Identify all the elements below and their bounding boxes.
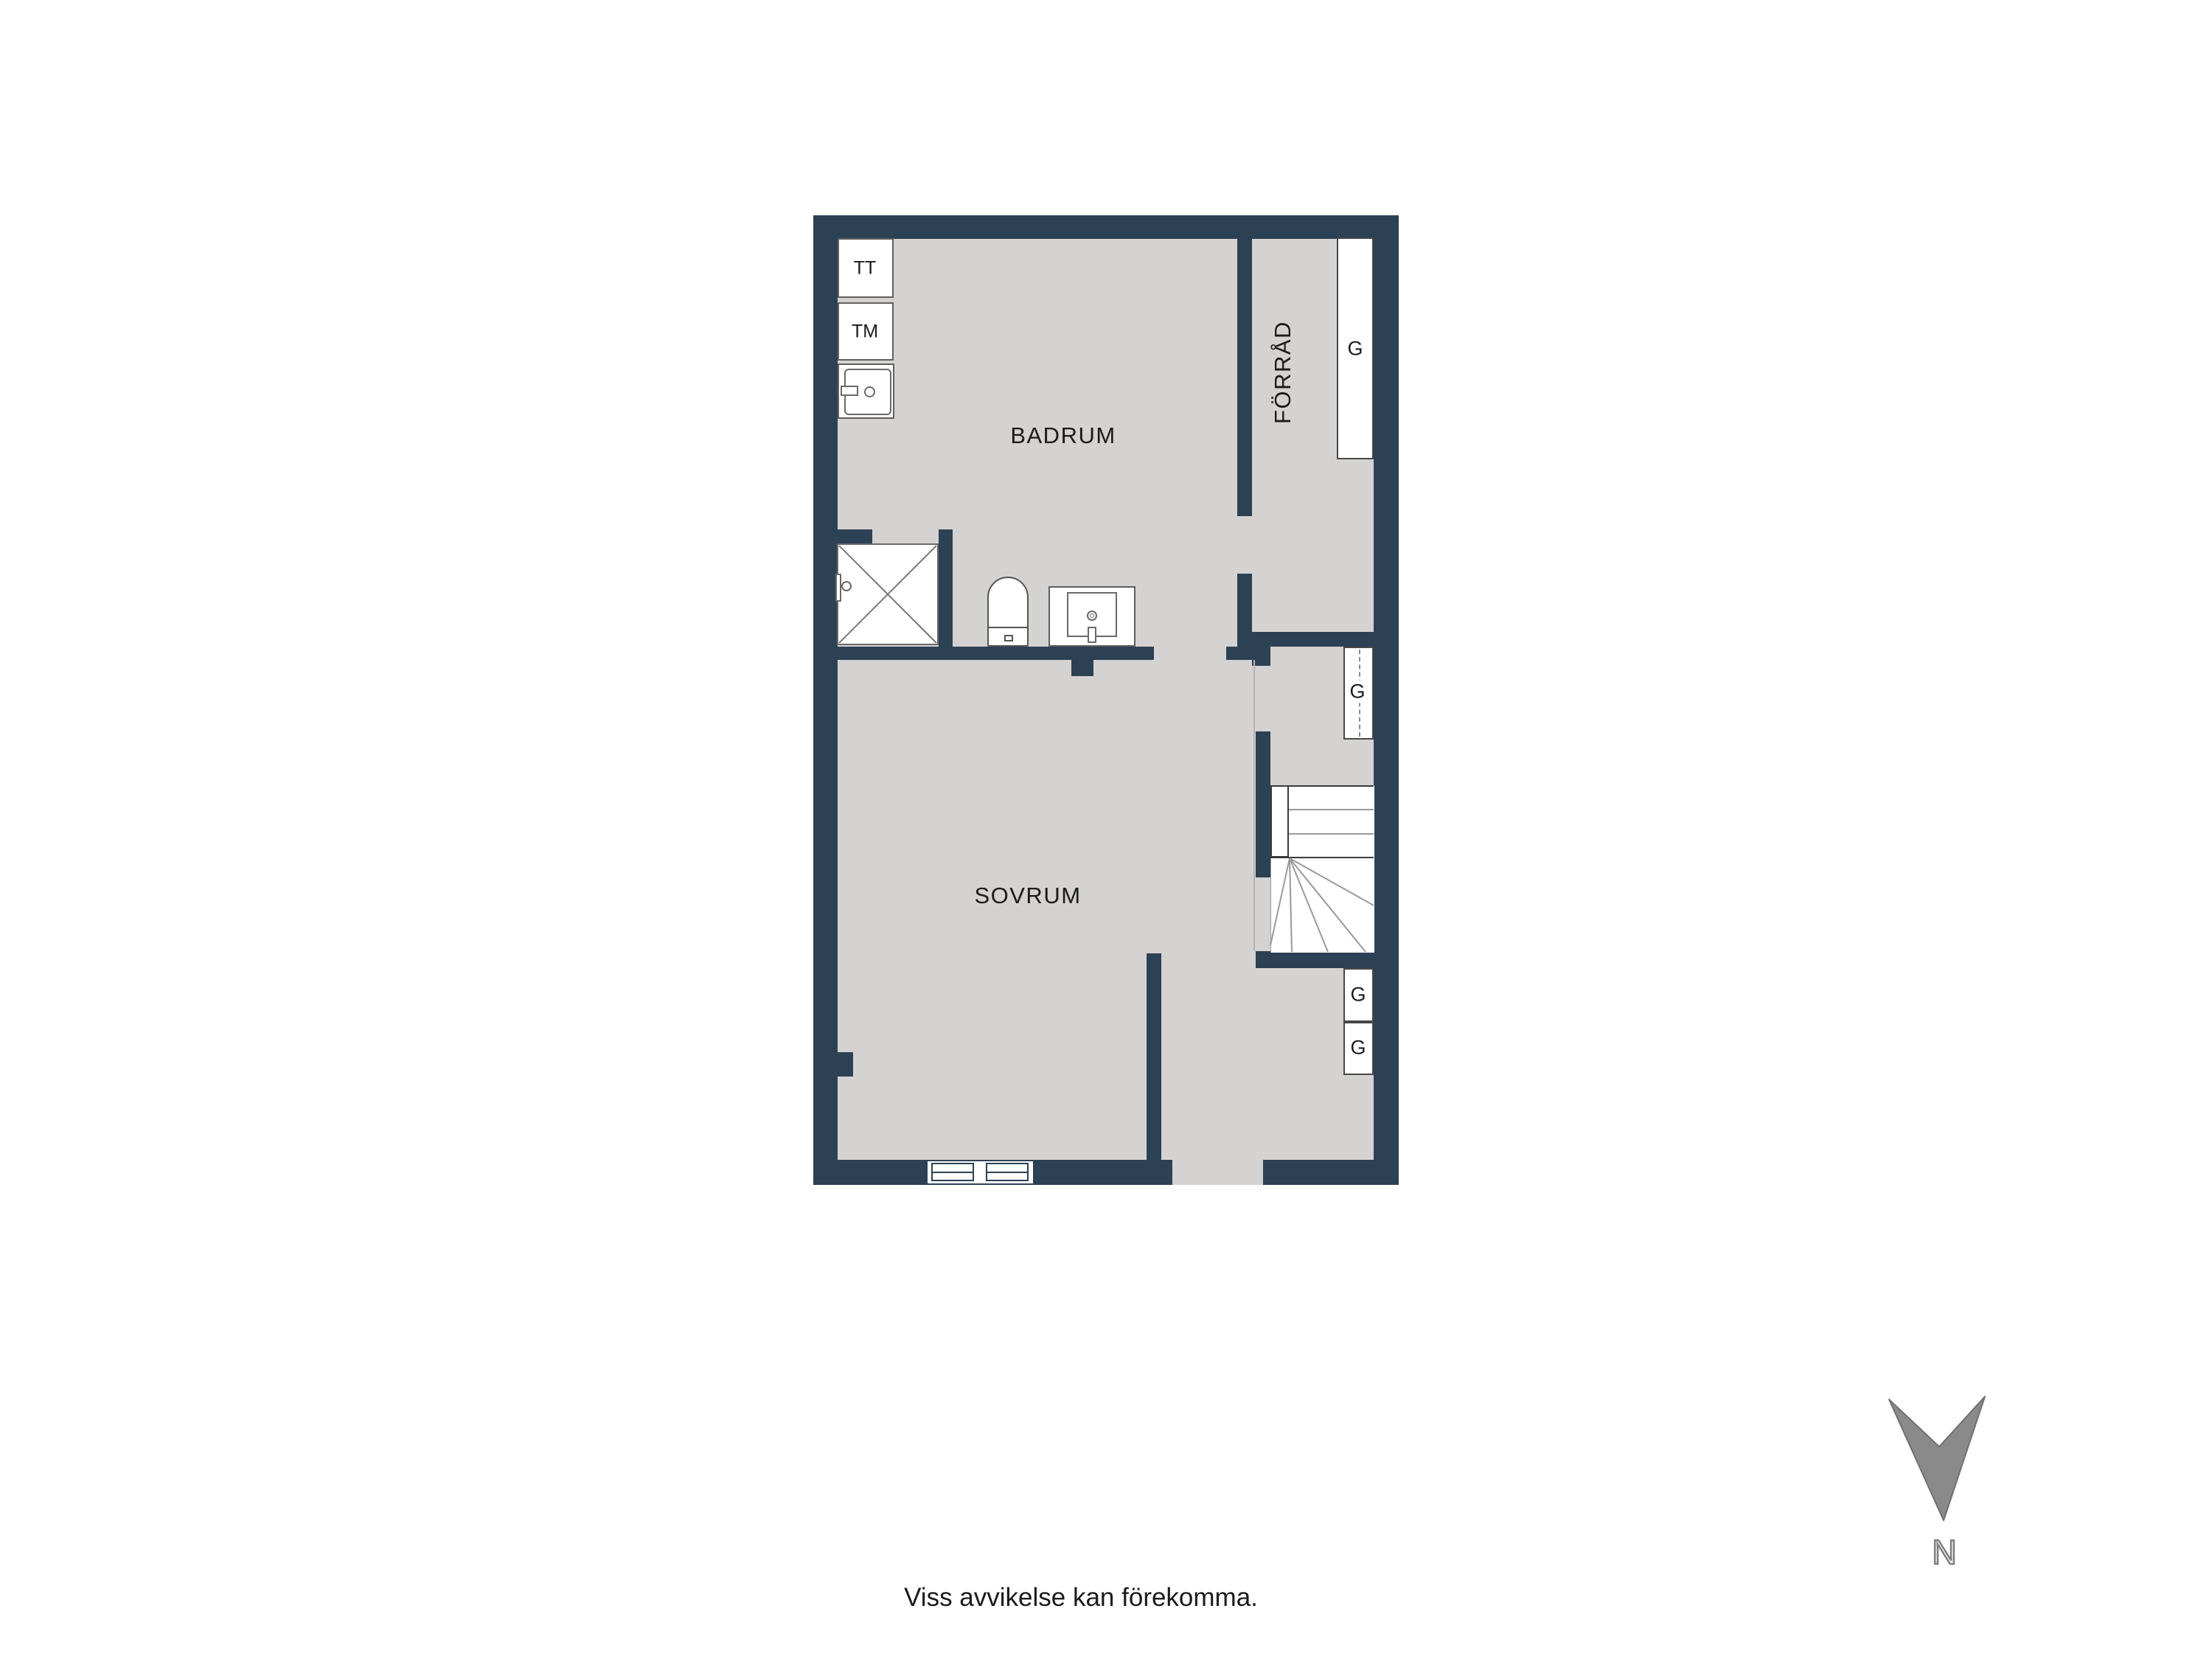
- wall-shower-right: [939, 529, 953, 647]
- floor-plan-page: TT TM G G G G: [0, 0, 2212, 1659]
- window-double: [926, 1160, 1034, 1185]
- wall-sovrum-entre: [1147, 953, 1161, 1160]
- washbasin-tap: [1088, 627, 1096, 643]
- wall-badrum-bottom: [838, 647, 1154, 660]
- washbasin-counter: [1048, 586, 1135, 647]
- hall-wardrobe-label: G: [1347, 681, 1367, 703]
- window-pane-left: [931, 1163, 974, 1181]
- entre-wardrobe-1-label: G: [1350, 984, 1366, 1006]
- toilet-seat-line: [989, 627, 1027, 628]
- wall-stair-west: [1256, 731, 1270, 877]
- shower-head: [841, 581, 852, 591]
- room-label-badrum: BADRUM: [1010, 422, 1116, 449]
- washing-machine-label: TM: [852, 321, 878, 343]
- stairs-landing: [1270, 785, 1289, 858]
- window-pane-left-midline: [933, 1172, 973, 1173]
- wall-badrum-forrad-upper: [1237, 237, 1252, 516]
- toilet-flush-button: [1004, 635, 1013, 641]
- north-label: N: [1932, 1532, 1956, 1572]
- tumble-dryer-label: TT: [854, 258, 877, 279]
- stair-floor-boundary-line: [1253, 660, 1255, 951]
- wall-outer-bottom-right: [1263, 1160, 1399, 1185]
- window-pane-right: [986, 1163, 1029, 1181]
- wall-stair-bottom: [1256, 951, 1379, 968]
- wall-shower-top-stub: [838, 529, 872, 543]
- wall-outer-left: [813, 215, 838, 1185]
- room-label-forrad: FÖRRÅD: [1270, 321, 1296, 424]
- room-label-sovrum: SOVRUM: [974, 883, 1081, 909]
- shower: [837, 543, 939, 645]
- forrad-wardrobe-label: G: [1347, 338, 1363, 361]
- wall-outer-top: [813, 215, 1399, 239]
- toilet: [987, 577, 1029, 647]
- floor-area: [818, 221, 1394, 1185]
- north-arrow: [1889, 1397, 1985, 1520]
- wall-outer-right: [1374, 215, 1399, 1185]
- wall-badrum-bottom-right: [1226, 647, 1252, 660]
- footer-disclaimer: Viss avvikelse kan förekomma.: [904, 1583, 1258, 1613]
- laundry-sink-tap: [841, 386, 858, 396]
- shower-mixer: [835, 574, 841, 602]
- entre-wardrobe-2-label: G: [1350, 1037, 1366, 1060]
- window-pane-right-midline: [987, 1172, 1027, 1173]
- laundry-sink: [838, 364, 894, 419]
- washbasin-drain-inner: [1090, 613, 1094, 618]
- laundry-sink-drain: [864, 386, 875, 397]
- wall-badrum-forrad-lower: [1237, 574, 1252, 647]
- wall-stub-below-sink: [1071, 660, 1093, 676]
- wall-left-stub: [838, 1052, 853, 1077]
